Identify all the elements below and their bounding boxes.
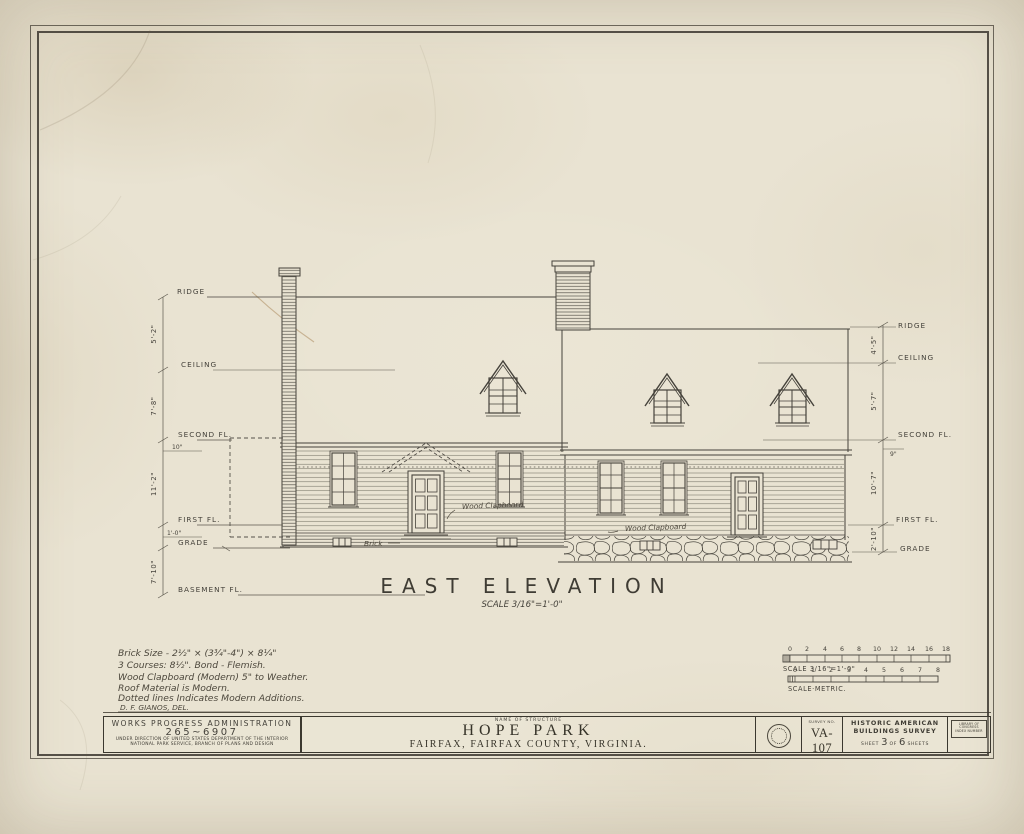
svg-text:1'-0": 1'-0" [167,530,181,537]
center-chimney [552,261,594,330]
left-dormer [480,361,526,416]
elevation-drawing: RIDGE CEILING SECOND FL. 10" FIRST FL. 1… [0,0,1024,834]
level-labels-right: RIDGE CEILING SECOND FL. 9" FIRST FL. GR… [870,321,952,553]
titleblock-wpa: WORKS PROGRESS ADMINISTRATION 265~6907 U… [104,717,302,752]
svg-text:2: 2 [829,667,833,674]
svg-text:10: 10 [873,646,881,653]
svg-text:10'-7": 10'-7" [870,471,878,495]
svg-text:4: 4 [864,667,868,674]
titleblock-loc: LIBRARY OF CONGRESS INDEX NUMBER [947,717,990,752]
loc-index-box: LIBRARY OF CONGRESS INDEX NUMBER [951,720,987,738]
right-dormer-1 [645,374,689,426]
habs-line-2: BUILDINGS SURVEY [843,728,947,736]
svg-text:16: 16 [925,646,933,653]
sheet-number: 3 [881,737,887,748]
notes-block: Brick Size - 2½" × (3¾"-4") × 8¼" 3 Cour… [118,648,308,712]
svg-text:5'-7": 5'-7" [870,391,878,410]
left-window-2 [494,451,525,507]
svg-text:1: 1 [811,667,815,674]
svg-text:EAST ELEVATION: EAST ELEVATION [380,574,673,598]
svg-text:RIDGE: RIDGE [898,321,926,330]
svg-text:FIRST FL.: FIRST FL. [896,515,938,524]
svg-text:4'-5": 4'-5" [870,335,878,354]
round-stamp-seal [767,724,791,748]
right-window-1 [596,461,626,515]
svg-text:Brick: Brick [364,539,383,548]
svg-text:5: 5 [882,667,886,674]
svg-text:BASEMENT FL.: BASEMENT FL. [178,585,243,594]
sheets-word: SHEETS [907,742,929,747]
svg-text:Brick Size - 2½" × (3¾"-4") ×: Brick Size - 2½" × (3¾"-4") × 8¼" [118,648,277,659]
structure-location: FAIRFAX, FAIRFAX COUNTY, VIRGINIA. [302,739,755,750]
svg-text:7'-10": 7'-10" [150,560,158,584]
titleblock: WORKS PROGRESS ADMINISTRATION 265~6907 U… [103,716,991,753]
svg-text:GRADE: GRADE [178,538,209,547]
svg-text:7: 7 [918,667,922,674]
svg-text:3 Courses: 8½". Bond - Flemis: 3 Courses: 8½". Bond - Flemish. [118,660,266,671]
svg-text:SCALE 3/16"=1'-0": SCALE 3/16"=1'-0" [481,600,562,610]
titleblock-survey: SURVEY NO. VA-107 [801,717,842,752]
elevation-title: EAST ELEVATION SCALE 3/16"=1'-0" [380,574,673,610]
delineator-name: D. F. GIANOS, DEL. [120,703,189,712]
svg-text:CEILING: CEILING [898,353,934,362]
survey-no-label: SURVEY NO. [802,719,842,724]
loc-line-2: INDEX NUMBER [952,730,986,734]
svg-text:SCALE·METRIC.: SCALE·METRIC. [788,685,846,693]
scale-bar-metric: 0 1 2 3 4 5 6 7 8 SCALE·METRIC. [788,667,940,693]
svg-text:3: 3 [847,667,851,674]
wpa-project-number: 265~6907 [104,728,300,737]
svg-text:0: 0 [788,646,792,653]
titleblock-top-rule [103,712,991,713]
svg-text:FIRST FL.: FIRST FL. [178,515,220,524]
svg-text:5'-2": 5'-2" [150,324,158,343]
svg-text:SECOND FL.: SECOND FL. [178,430,232,439]
right-door [727,473,767,537]
svg-text:0: 0 [793,667,797,674]
svg-text:18: 18 [942,646,950,653]
svg-text:Wood Clapboard (Modern) 5" to: Wood Clapboard (Modern) 5" to Weather. [118,672,308,683]
left-window-1 [328,451,359,507]
survey-number: VA-107 [802,726,842,756]
svg-text:6: 6 [900,667,904,674]
svg-text:SECOND FL.: SECOND FL. [898,430,952,439]
svg-text:11'-2": 11'-2" [150,472,158,496]
svg-text:8: 8 [936,667,940,674]
svg-text:8: 8 [857,646,861,653]
svg-text:4: 4 [823,646,827,653]
wpa-nps-line: NATIONAL PARK SERVICE, BRANCH OF PLANS A… [104,742,300,747]
svg-text:CEILING: CEILING [181,360,217,369]
titleblock-habs: HISTORIC AMERICAN BUILDINGS SURVEY SHEET… [842,717,947,752]
right-window-2 [659,461,689,515]
sheet-count-line: SHEET 3 OF 6 SHEETS [843,737,947,748]
svg-text:12: 12 [890,646,898,653]
dashed-left-addition [230,438,290,537]
svg-text:14: 14 [907,646,915,653]
left-door [401,471,451,539]
sheet-word: SHEET [861,742,879,747]
of-word: OF [890,742,897,747]
sheet-total: 6 [899,737,905,748]
sheet-paper: RIDGE CEILING SECOND FL. 10" FIRST FL. 1… [0,0,1024,834]
svg-text:GRADE: GRADE [900,544,931,553]
svg-text:6: 6 [840,646,844,653]
svg-text:7'-8": 7'-8" [150,396,158,415]
svg-text:2'-10": 2'-10" [870,527,878,551]
titleblock-stamp-cell [755,717,801,752]
svg-text:RIDGE: RIDGE [177,287,205,296]
structure-name: HOPE PARK [302,723,755,739]
right-dormer-2 [770,374,814,426]
svg-text:2: 2 [805,646,809,653]
svg-text:10": 10" [172,444,183,451]
svg-text:9": 9" [890,451,897,458]
titleblock-structure: NAME OF STRUCTURE HOPE PARK FAIRFAX, FAI… [302,717,755,752]
